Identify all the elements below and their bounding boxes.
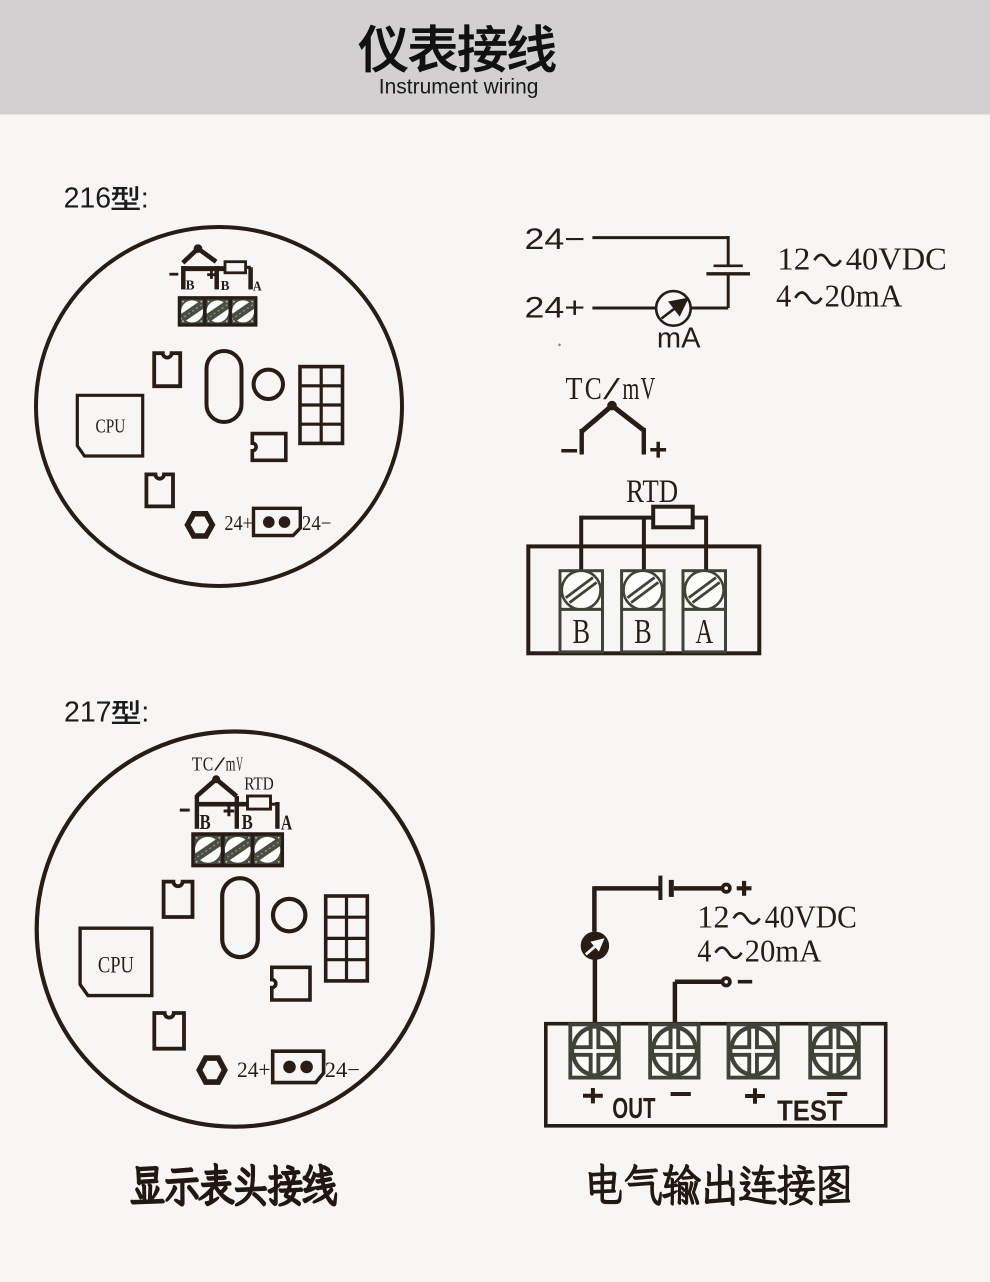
svg-text:24+: 24+ bbox=[224, 511, 253, 535]
svg-text:4: 4 bbox=[697, 934, 711, 969]
svg-text::: : bbox=[141, 697, 149, 729]
svg-text:m: m bbox=[622, 370, 639, 406]
svg-text:12: 12 bbox=[777, 240, 810, 276]
svg-text:RTD: RTD bbox=[244, 773, 274, 793]
svg-text:B: B bbox=[221, 279, 230, 294]
svg-text:C: C bbox=[585, 370, 602, 406]
svg-text:A: A bbox=[281, 810, 293, 834]
svg-text::: : bbox=[141, 183, 149, 215]
svg-text:4: 4 bbox=[776, 278, 791, 314]
svg-text:CPU: CPU bbox=[98, 953, 134, 978]
svg-text:mA: mA bbox=[657, 323, 701, 355]
svg-text:A: A bbox=[696, 612, 714, 651]
svg-text:24+: 24+ bbox=[237, 1057, 271, 1082]
svg-text:B: B bbox=[186, 278, 195, 293]
svg-text:40VDC: 40VDC bbox=[846, 240, 947, 276]
svg-text:TEST: TEST bbox=[777, 1095, 843, 1127]
svg-text:20mA: 20mA bbox=[745, 934, 822, 969]
svg-text:24−: 24− bbox=[325, 1057, 360, 1082]
svg-text:T: T bbox=[192, 753, 203, 775]
svg-text:B: B bbox=[200, 810, 211, 834]
svg-text:C: C bbox=[203, 753, 214, 775]
svg-text:24−: 24− bbox=[525, 223, 586, 256]
svg-text:/: / bbox=[214, 753, 226, 775]
svg-text:216: 216 bbox=[64, 183, 112, 215]
svg-text:m: m bbox=[226, 753, 236, 775]
svg-text:24−: 24− bbox=[302, 511, 332, 535]
svg-text:V: V bbox=[236, 753, 243, 775]
svg-text:CPU: CPU bbox=[96, 415, 126, 437]
svg-text:B: B bbox=[634, 612, 652, 651]
svg-text:V: V bbox=[641, 370, 656, 406]
svg-text:24+: 24+ bbox=[525, 292, 586, 325]
svg-text:217: 217 bbox=[64, 697, 112, 729]
svg-text:T: T bbox=[566, 370, 583, 406]
svg-text:/: / bbox=[603, 370, 620, 406]
svg-text:OUT: OUT bbox=[612, 1093, 655, 1125]
svg-text:B: B bbox=[242, 810, 253, 834]
svg-text:Instrument wiring: Instrument wiring bbox=[379, 76, 539, 99]
svg-text:40VDC: 40VDC bbox=[765, 899, 857, 934]
svg-text:A: A bbox=[253, 280, 263, 295]
svg-text:12: 12 bbox=[697, 899, 729, 934]
svg-text:RTD: RTD bbox=[626, 474, 678, 510]
svg-text:B: B bbox=[573, 612, 591, 651]
svg-text:20mA: 20mA bbox=[825, 278, 903, 314]
